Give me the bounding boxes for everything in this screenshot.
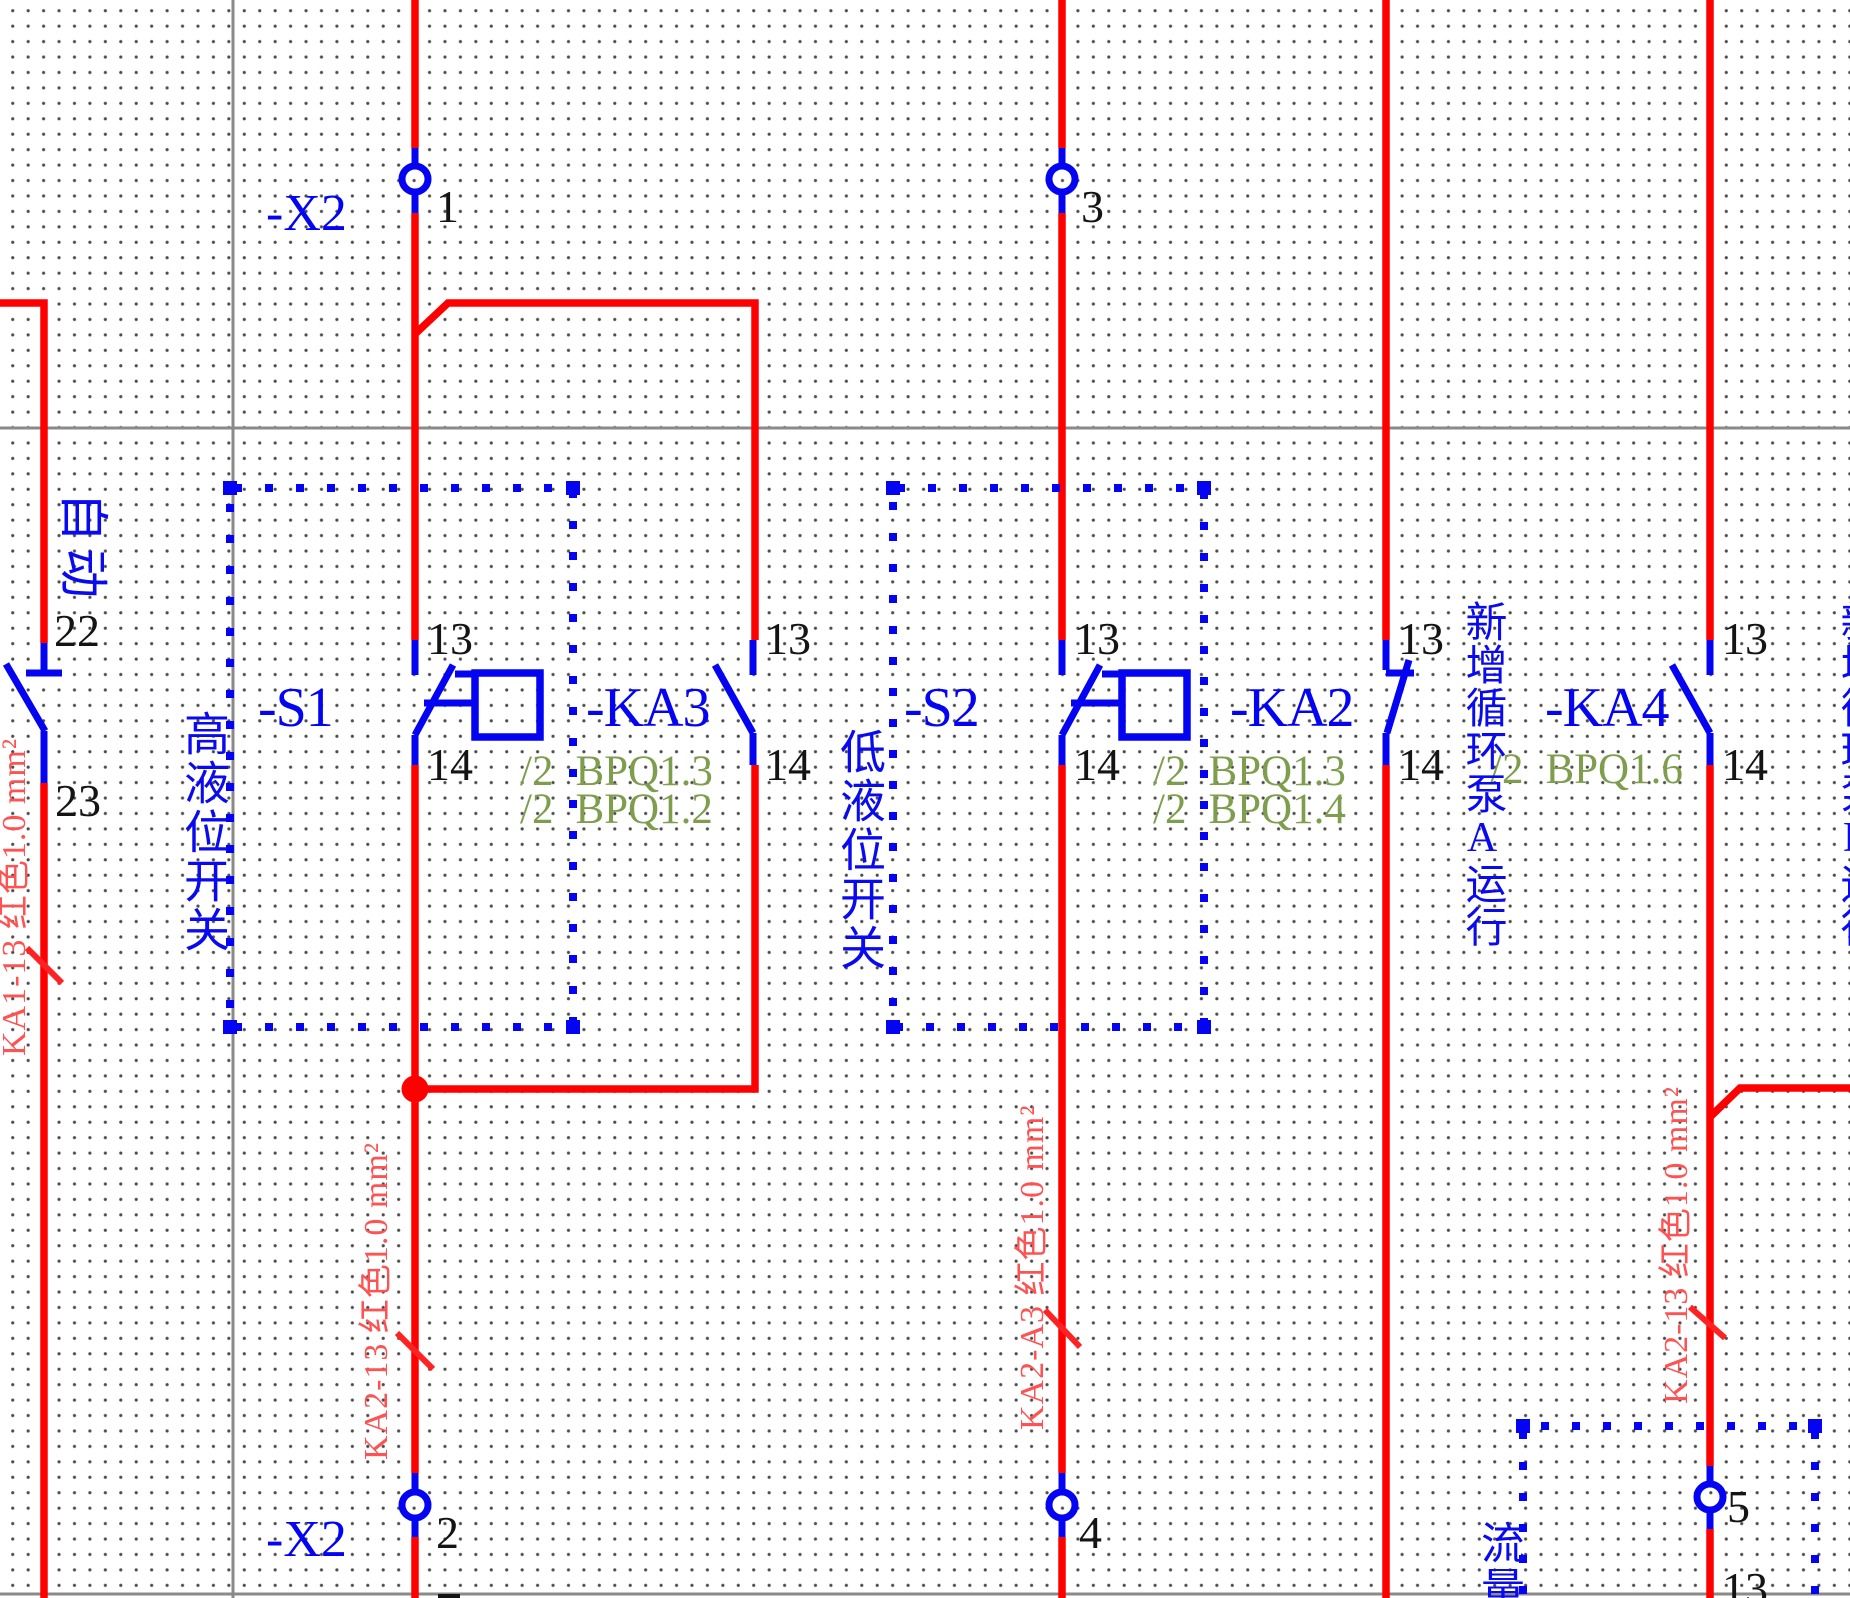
wire-label-x2-5[interactable]: KA2-13 红色1.0 mm²	[1660, 1086, 1694, 1404]
xref-sheet: /2	[1153, 788, 1186, 831]
pin-s2-13[interactable]: 13	[1074, 616, 1120, 662]
enclosure-flow-switch[interactable]	[1523, 1426, 1815, 1598]
xref-ka2-2[interactable]: /2 BPQ1.4	[1153, 788, 1346, 831]
pin-ka4-13[interactable]: 13	[1722, 616, 1768, 662]
s1-actuator-box[interactable]	[475, 673, 540, 737]
xref-address: BPQ1.2	[575, 788, 712, 831]
wire-marker-ticks	[27, 948, 1725, 1369]
pin-s2-14[interactable]: 14	[1074, 742, 1120, 788]
xref-sheet: /2	[520, 788, 553, 831]
terminal-x2-2[interactable]	[402, 1473, 428, 1537]
clipped-glyph-fragment	[438, 1594, 460, 1598]
annotation-auto-mode[interactable]: 自动	[58, 492, 108, 604]
device-label-ka3[interactable]: -KA3	[586, 680, 710, 736]
pin-ka2-14[interactable]: 14	[1398, 742, 1444, 788]
terminal-number-5[interactable]: 5	[1727, 1484, 1750, 1530]
pin-ka1-22[interactable]: 22	[54, 608, 100, 654]
wire-ka4-column[interactable]	[1710, 0, 1850, 1598]
annotation-flow[interactable]: 流量	[1476, 1520, 1520, 1598]
terminal-number-2[interactable]: 2	[436, 1510, 459, 1556]
pin-flow-contact-13[interactable]: 13	[1722, 1566, 1768, 1598]
xref-ka3-2[interactable]: /2 BPQ1.2	[520, 788, 713, 831]
xref-ka4-1[interactable]: /2 BPQ1.6	[1490, 748, 1683, 791]
terminal-number-3[interactable]: 3	[1081, 184, 1104, 230]
terminal-x2-3[interactable]	[1049, 148, 1075, 213]
pin-ka3-13[interactable]: 13	[765, 616, 811, 662]
pin-ka4-14[interactable]: 14	[1722, 742, 1768, 788]
s2-actuator-box[interactable]	[1122, 673, 1187, 737]
pin-ka2-13[interactable]: 13	[1398, 616, 1444, 662]
pin-ka3-14[interactable]: 14	[765, 742, 811, 788]
wire-label-left-feed[interactable]: KA1-13 红色1.0 mm²	[0, 738, 32, 1056]
wire-label-x2-4[interactable]: KA2-A3 红色1.0 mm²	[1016, 1104, 1050, 1430]
annotation-pump-b-running[interactable]: 新增循环泵B运行	[1836, 600, 1850, 948]
junction-dot[interactable]	[402, 1076, 429, 1103]
device-label-s2[interactable]: -S2	[904, 680, 979, 736]
annotation-low-level-switch[interactable]: 低液位开关	[836, 728, 882, 973]
xref-address: BPQ1.4	[1208, 788, 1345, 831]
terminal-number-1[interactable]: 1	[436, 184, 459, 230]
device-label-ka2[interactable]: -KA2	[1230, 680, 1354, 736]
xref-address: BPQ1.6	[1545, 748, 1682, 791]
device-label-s1[interactable]: -S1	[258, 680, 333, 736]
wire-label-x2-2[interactable]: KA2-13 红色1.0 mm²	[360, 1142, 394, 1460]
terminal-strip-label-bottom[interactable]: -X2	[266, 1514, 347, 1566]
contact-ka3[interactable]	[715, 640, 753, 765]
annotation-pump-a-running[interactable]: 新增循环泵A运行	[1461, 600, 1503, 948]
annotation-high-level-switch[interactable]: 高液位开关	[180, 710, 226, 955]
pin-s1-13[interactable]: 13	[427, 616, 473, 662]
pin-s1-14[interactable]: 14	[427, 742, 473, 788]
terminal-x2-4[interactable]	[1049, 1473, 1075, 1537]
pin-ka1-23[interactable]: 23	[55, 778, 101, 824]
terminal-strip-label-top[interactable]: -X2	[266, 188, 347, 240]
device-label-ka4[interactable]: -KA4	[1545, 680, 1669, 736]
terminal-number-4[interactable]: 4	[1079, 1510, 1102, 1556]
schematic-canvas: -X2 -X2 1 3 2 4 5 22 23 13 14 13 14 13 1…	[0, 0, 1850, 1598]
terminal-x2-5[interactable]	[1697, 1466, 1723, 1529]
terminal-x2-1[interactable]	[402, 148, 428, 213]
